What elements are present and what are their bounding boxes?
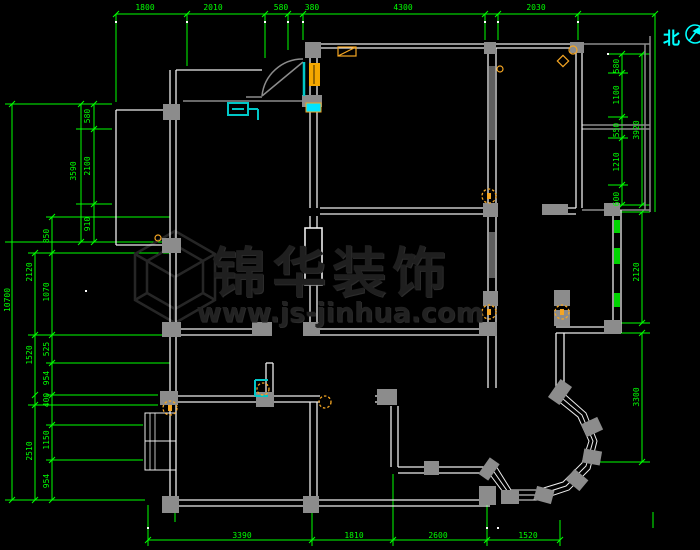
watermark-brand: 锦华装饰 bbox=[212, 229, 452, 308]
dim-label-right: 1100 bbox=[613, 85, 621, 104]
kitchen-appliance-icon bbox=[228, 103, 258, 120]
dim-label-bottom: 2600 bbox=[428, 532, 447, 540]
watermark-url: www.js-jinhua.com bbox=[196, 298, 483, 329]
dim-label-right: 550 bbox=[613, 123, 621, 137]
dim-label-left: 400 bbox=[43, 393, 51, 407]
north-label: 北 bbox=[663, 24, 680, 49]
faceted-bay-window bbox=[478, 379, 603, 504]
dim-label-right: 3300 bbox=[633, 387, 641, 406]
dim-label-top: 4300 bbox=[393, 4, 412, 12]
swing-door-icon bbox=[246, 59, 303, 97]
dim-label-bottom: 3390 bbox=[232, 532, 251, 540]
small-marker-icons bbox=[155, 46, 577, 241]
dim-label-right: 1210 bbox=[613, 152, 621, 171]
dim-label-top: 1800 bbox=[135, 4, 154, 12]
dim-label-left: 910 bbox=[84, 217, 92, 231]
dim-label-left: 3590 bbox=[70, 161, 78, 180]
dim-label-left: 2510 bbox=[26, 441, 34, 460]
dim-label-top: 580 bbox=[274, 4, 288, 12]
north-compass-icon bbox=[686, 25, 700, 43]
dim-label-left: 954 bbox=[43, 474, 51, 488]
dim-label-right: 600 bbox=[613, 192, 621, 206]
dim-label-top: 2030 bbox=[526, 4, 545, 12]
dim-label-left: 525 bbox=[43, 342, 51, 356]
gray-walls bbox=[183, 36, 650, 212]
dim-label-left: 2120 bbox=[26, 262, 34, 281]
dim-label-left: 1150 bbox=[43, 430, 51, 449]
dim-label-left: 2100 bbox=[84, 156, 92, 175]
dim-label-bottom: 1520 bbox=[518, 532, 537, 540]
dim-label-left: 10700 bbox=[4, 288, 12, 312]
dim-label-left: 1070 bbox=[43, 282, 51, 301]
bay-window-posts bbox=[478, 379, 603, 504]
dim-label-bottom: 1810 bbox=[344, 532, 363, 540]
dim-label-left: 850 bbox=[43, 229, 51, 243]
entry-mat-icon bbox=[306, 103, 321, 112]
cad-floorplan-canvas: 锦华装饰 www.js-jinhua.com 北 1800 2010 580 3… bbox=[0, 0, 700, 550]
dim-label-left: 1520 bbox=[26, 345, 34, 364]
left-window-bay bbox=[145, 413, 176, 470]
green-window-fills bbox=[614, 220, 620, 307]
dim-label-left: 954 bbox=[43, 371, 51, 385]
dim-label-left: 580 bbox=[84, 109, 92, 123]
dim-label-top: 380 bbox=[305, 4, 319, 12]
dim-label-right: 3920 bbox=[633, 120, 641, 139]
dim-label-right: 580 bbox=[613, 59, 621, 73]
dim-label-top: 2010 bbox=[203, 4, 222, 12]
dim-label-right: 2120 bbox=[633, 262, 641, 281]
